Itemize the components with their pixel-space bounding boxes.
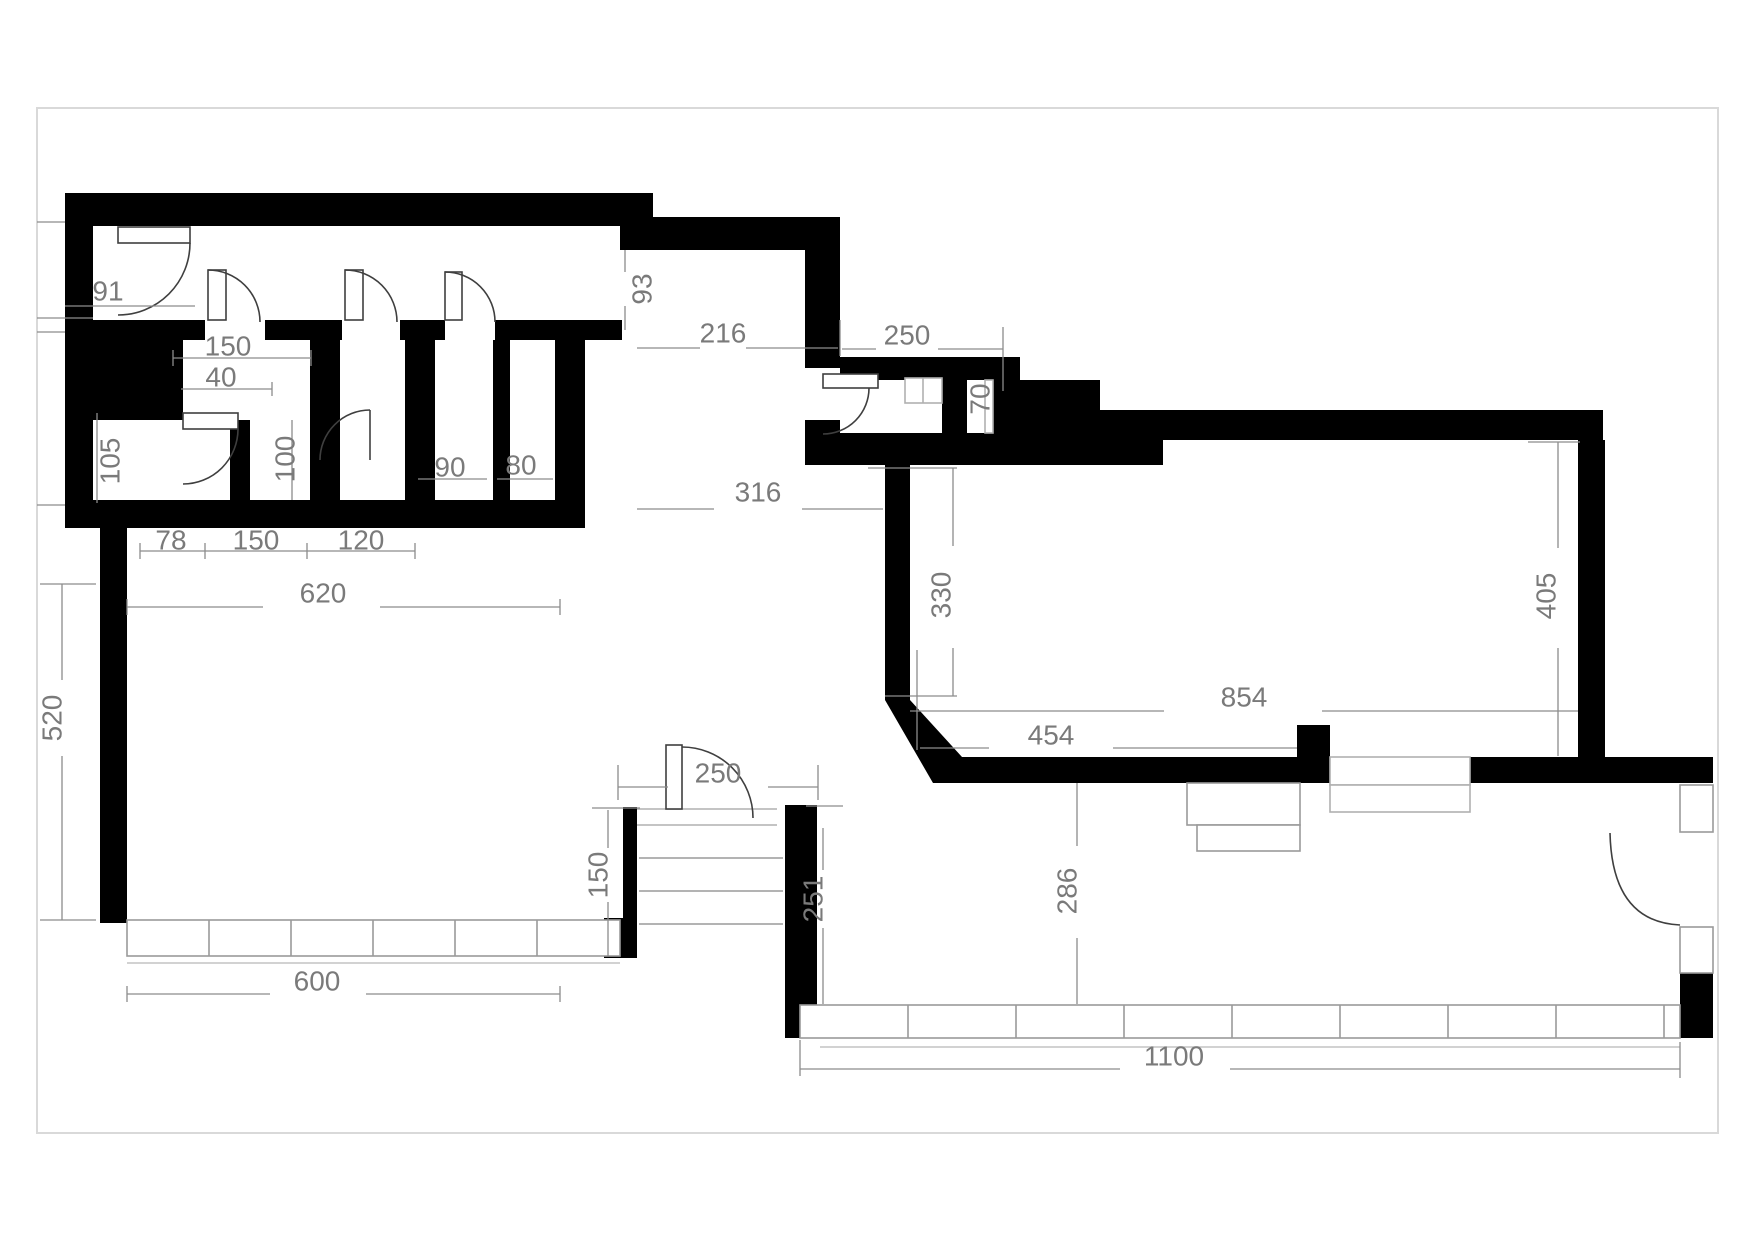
dim-label-150b: 150 <box>233 525 280 556</box>
dim-label-454: 454 <box>1028 720 1075 751</box>
bottom-left-window <box>127 920 620 963</box>
dim-label-91: 91 <box>92 276 123 307</box>
dim-label-100: 100 <box>270 436 301 483</box>
dim-label-216: 216 <box>700 318 747 349</box>
hall-door-leaf <box>118 227 190 243</box>
entrance-door-leaf <box>666 745 682 809</box>
dim-label-105: 105 <box>95 438 126 485</box>
dim-label-330: 330 <box>926 572 957 619</box>
dim-label-405: 405 <box>1531 573 1562 620</box>
dim-label-250e: 250 <box>695 758 742 789</box>
right-door-panel <box>1680 927 1713 973</box>
dim-label-90: 90 <box>434 452 465 483</box>
corridor-door3-leaf <box>445 272 462 320</box>
dim-label-520: 520 <box>37 695 68 742</box>
dim-label-316: 316 <box>735 477 782 508</box>
dim-label-620: 620 <box>300 578 347 609</box>
dim-label-600: 600 <box>294 966 341 997</box>
dim-label-854: 854 <box>1221 682 1268 713</box>
sheet-border <box>37 108 1718 1133</box>
dim-label-93: 93 <box>627 273 658 304</box>
corridor-door2-leaf <box>345 270 363 320</box>
vestibule-door-leaf <box>823 374 878 388</box>
dim-label-70: 70 <box>965 383 996 414</box>
big-room-window <box>1330 757 1470 785</box>
dim-label-40: 40 <box>205 362 236 393</box>
dim-label-150a: 150 <box>205 331 252 362</box>
dim-label-80: 80 <box>505 450 536 481</box>
dim-label-78: 78 <box>155 525 186 556</box>
room105-door-leaf <box>183 413 238 429</box>
dim-label-250v: 250 <box>884 320 931 351</box>
floorplan-sheet: 91 150 40 105 100 90 80 78 150 120 620 5… <box>0 0 1755 1240</box>
dim-label-120: 120 <box>338 525 385 556</box>
big-room-recess <box>1187 783 1300 825</box>
dim-label-1100: 1100 <box>1144 1041 1204 1072</box>
dim-label-286: 286 <box>1052 868 1083 915</box>
dim-label-251: 251 <box>798 876 829 923</box>
right-door-frame <box>1680 785 1713 832</box>
corridor-door1-leaf <box>208 270 226 320</box>
dim-label-150s: 150 <box>583 852 614 899</box>
